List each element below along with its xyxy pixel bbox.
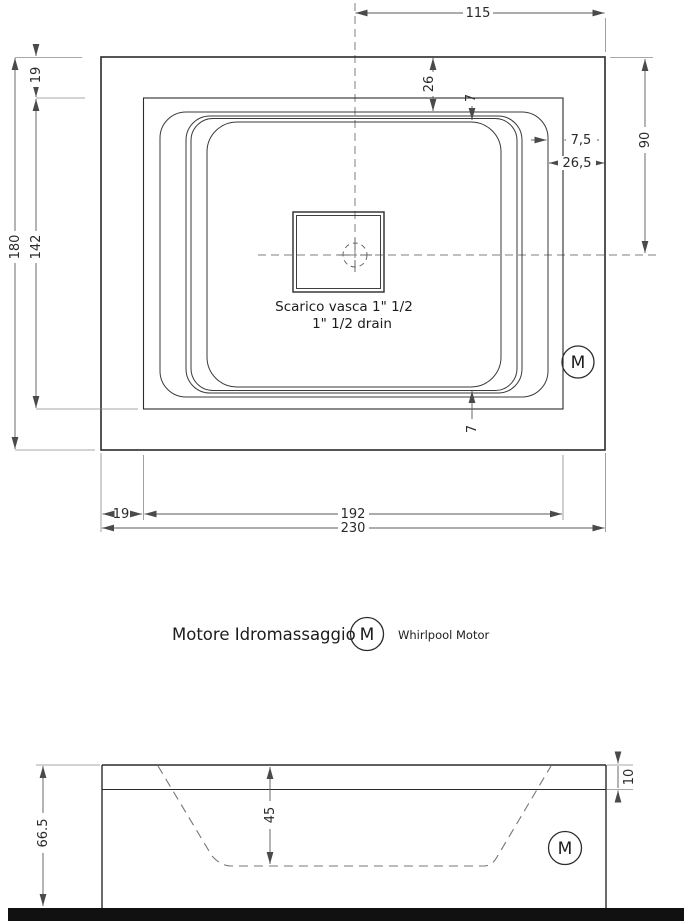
dim-label-665-group: 66.5 xyxy=(36,813,51,853)
dim-label-7b-group: 7 xyxy=(465,425,480,433)
plan-view: Scarico vasca 1" 1/2 1" 1/2 drain M 115 … xyxy=(8,3,661,536)
motor-letter-plan: M xyxy=(571,353,586,373)
drain-label-english: 1" 1/2 drain xyxy=(312,316,392,332)
dim-label-142-group: 142 xyxy=(29,231,44,263)
drain-box-inner xyxy=(297,216,381,289)
dim-label-115: 115 xyxy=(466,6,491,21)
dim-label-665: 66.5 xyxy=(36,819,51,848)
dim-label-142: 142 xyxy=(29,235,44,260)
bathtub-drawing-svg: Scarico vasca 1" 1/2 1" 1/2 drain M 115 … xyxy=(0,0,690,922)
dim-label-19-bottom: 19 xyxy=(113,507,130,522)
dim-label-192: 192 xyxy=(341,507,366,522)
drain-label-italian: Scarico vasca 1" 1/2 xyxy=(275,299,413,315)
dim-label-10: 10 xyxy=(622,769,637,786)
legend-label-english: Whirlpool Motor xyxy=(398,628,490,642)
floor-bar xyxy=(8,908,684,921)
dim-label-19-left: 19 xyxy=(29,67,44,84)
motor-letter-side: M xyxy=(558,839,573,859)
dim-label-19l-group: 19 xyxy=(29,63,44,87)
drain-box-outer xyxy=(293,212,384,292)
dim-label-7t-group: 7 xyxy=(464,94,479,102)
dim-label-230: 230 xyxy=(341,521,366,536)
legend-label-italian: Motore Idromassaggio xyxy=(172,625,356,644)
drain-box xyxy=(293,212,384,292)
dim-label-180: 180 xyxy=(8,235,23,260)
side-view: 66.5 45 10 M xyxy=(8,752,684,921)
dim-label-75: 7,5 xyxy=(571,133,592,148)
dim-label-265: 26,5 xyxy=(563,156,592,171)
dim-label-45-group: 45 xyxy=(263,801,278,829)
dim-label-26: 26 xyxy=(422,76,437,93)
dim-label-90: 90 xyxy=(638,132,653,149)
motor-legend: Motore Idromassaggio M Whirlpool Motor xyxy=(172,618,490,651)
dim-label-7-bottom: 7 xyxy=(465,425,480,433)
dim-label-7-top: 7 xyxy=(464,94,479,102)
motor-letter-legend: M xyxy=(360,625,375,645)
dim-label-90-group: 90 xyxy=(638,127,653,153)
side-hidden-profile xyxy=(158,766,551,866)
dim-label-180-group: 180 xyxy=(8,231,23,263)
dim-label-26-group: 26 xyxy=(422,72,437,96)
technical-drawing-page: Scarico vasca 1" 1/2 1" 1/2 drain M 115 … xyxy=(0,0,690,922)
dim-label-45: 45 xyxy=(263,807,278,824)
dim-label-10-group: 10 xyxy=(622,769,637,786)
